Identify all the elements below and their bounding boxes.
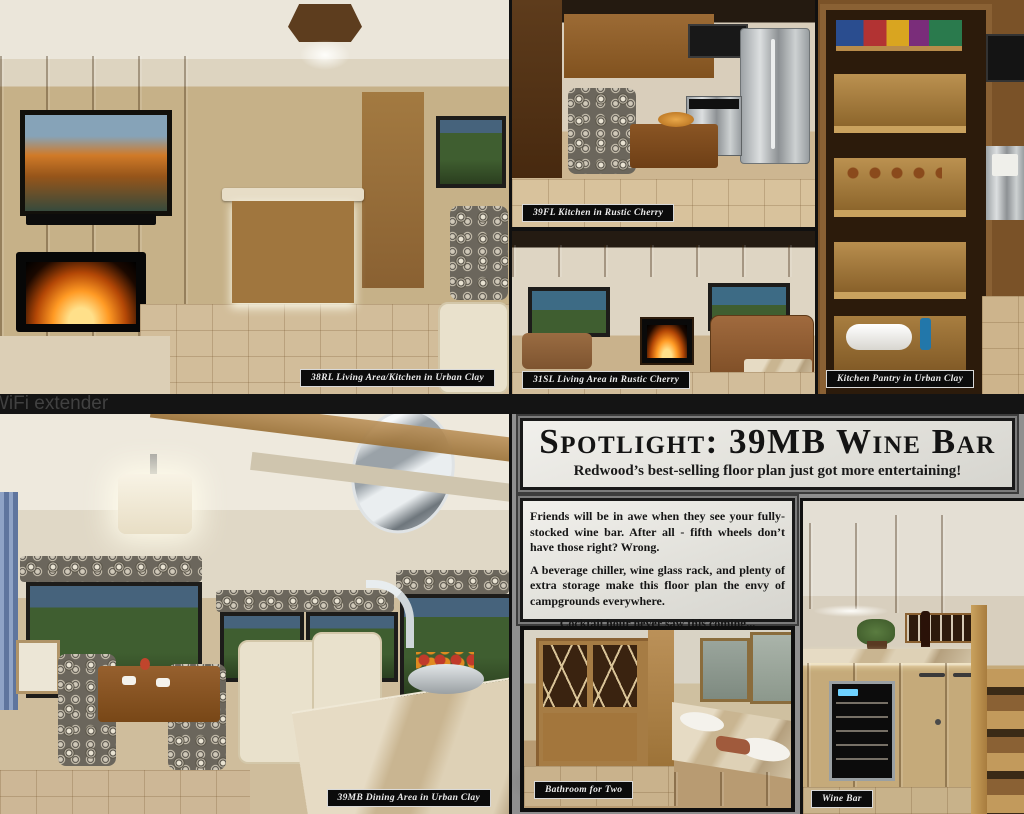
dish-towel — [992, 154, 1018, 176]
flower-vase — [140, 658, 150, 670]
under-cabinet-light — [813, 605, 889, 617]
left-bench-seat — [522, 333, 592, 369]
patterned-armchair — [568, 88, 636, 174]
spotlight-text-box: Friends will be in awe when they see you… — [520, 498, 795, 622]
pullout-drawer — [834, 242, 966, 299]
spotlight-paragraph: A beverage chiller, wine glass rack, and… — [530, 563, 785, 610]
patterned-chair — [450, 206, 508, 300]
spotlight-subtitle: Redwood’s best-selling floor plan just g… — [523, 463, 1012, 480]
jars — [842, 164, 942, 182]
photo-39fl-kitchen: 39FL Kitchen in Rustic Cherry — [512, 0, 815, 227]
coffee-cup — [156, 678, 170, 687]
photo-caption-31sl: 31SL Living Area in Rustic Cherry — [522, 371, 690, 389]
paper-towel-roll — [846, 324, 912, 350]
right-window — [436, 116, 506, 188]
range — [986, 146, 1024, 220]
island-countertop — [222, 188, 364, 201]
spotlight-title: Spotlight: 39MB Wine Bar — [523, 421, 1012, 463]
wardrobe-cabinet — [512, 0, 562, 178]
pendant-stem — [150, 454, 157, 476]
refrigerator — [740, 28, 810, 164]
soundbar — [26, 214, 156, 225]
photo-caption-38rl: 38RL Living Area/Kitchen in Urban Clay — [300, 369, 495, 387]
bar-countertop — [803, 649, 983, 663]
beverage-chiller — [829, 681, 895, 781]
pullout-shelf — [834, 158, 966, 217]
tv-screen — [20, 110, 172, 216]
fireplace — [16, 252, 146, 332]
wood-table — [630, 124, 718, 168]
window-valance — [396, 570, 509, 594]
fireplace — [640, 317, 694, 365]
fruit-bowl — [658, 112, 694, 127]
spotlight-headline-box: Spotlight: 39MB Wine Bar Redwood’s best-… — [520, 418, 1015, 490]
photo-bathroom: Bathroom for Two — [520, 626, 795, 812]
wine-bottle — [921, 611, 930, 647]
steps — [987, 669, 1024, 814]
window-valance — [20, 556, 202, 582]
spray-bottle — [920, 318, 931, 350]
carpet — [0, 336, 170, 394]
chandelier-light — [300, 40, 350, 70]
chiller-led-display — [838, 689, 858, 696]
photo-wine-bar: Wine Bar — [800, 498, 1024, 814]
drawer-handle — [919, 673, 945, 677]
tall-cabinet — [362, 92, 424, 288]
photo-caption-bathroom: Bathroom for Two — [534, 781, 633, 799]
brochure-page: 38RL Living Area/Kitchen in Urban Clay 3… — [0, 0, 1024, 814]
photo-caption-39fl: 39FL Kitchen in Rustic Cherry — [522, 204, 674, 222]
photo-31sl-living: 31SL Living Area in Rustic Cherry — [512, 231, 815, 394]
chiller-bottle-shelves — [836, 702, 888, 772]
pullout-shelf — [834, 74, 966, 133]
divider-band: WiFi extender — [0, 394, 1024, 414]
double-doors — [536, 638, 652, 772]
cooktop — [689, 99, 739, 109]
bottom-drawer — [834, 316, 966, 376]
tile-floor — [0, 770, 250, 814]
door-lower-panels — [543, 713, 637, 761]
kitchen-island — [232, 201, 354, 303]
spotlight-section: Spotlight: 39MB Wine Bar Redwood’s best-… — [512, 414, 1024, 814]
wine-glass-rack — [905, 613, 975, 643]
spotlight-paragraph: Friends will be in awe when they see you… — [530, 509, 785, 556]
overhead-cabinets — [512, 245, 815, 277]
picture-frame — [16, 640, 60, 694]
fireplace-flames — [26, 262, 136, 324]
drum-pendant-light — [118, 474, 192, 534]
tile-floor — [982, 296, 1024, 394]
photo-caption-39mb: 39MB Dining Area in Urban Clay — [327, 789, 491, 807]
upper-cabinet — [895, 515, 981, 613]
door-glass-branch-panel — [543, 645, 587, 707]
photo-39mb-dining: 39MB Dining Area in Urban Clay — [0, 414, 509, 814]
ceiling-soffit — [150, 414, 509, 462]
stair-rail-post — [971, 605, 987, 814]
sink-basin — [680, 709, 724, 734]
photo-caption-wine-bar: Wine Bar — [811, 790, 873, 808]
door-glass-branch-panel — [593, 645, 637, 707]
upper-cabinet — [809, 523, 893, 609]
silver-bowl — [408, 664, 484, 694]
pantry-cabinet — [820, 4, 992, 394]
fridge-handles — [771, 39, 775, 149]
vanity-cabinets — [674, 772, 791, 806]
side-cabinet — [648, 630, 674, 778]
fireplace-flames — [647, 325, 687, 358]
vanity-mirror — [700, 638, 750, 702]
microwave — [986, 34, 1024, 82]
coffee-cup — [122, 676, 136, 685]
left-window — [528, 287, 610, 337]
photo-kitchen-pantry: Kitchen Pantry in Urban Clay — [818, 0, 1024, 394]
photo-38rl-living-kitchen: 38RL Living Area/Kitchen in Urban Clay — [0, 0, 509, 394]
photo-caption-pantry: Kitchen Pantry in Urban Clay — [826, 370, 974, 388]
vanity-mirror — [750, 632, 794, 704]
ceiling-chandelier — [288, 4, 362, 42]
wifi-extender-label: WiFi extender — [0, 393, 108, 415]
vanity-countertop — [672, 702, 795, 780]
dining-table — [98, 666, 220, 722]
snack-shelf — [836, 20, 962, 51]
cabinet-knob — [935, 719, 941, 725]
microwave — [688, 24, 748, 58]
